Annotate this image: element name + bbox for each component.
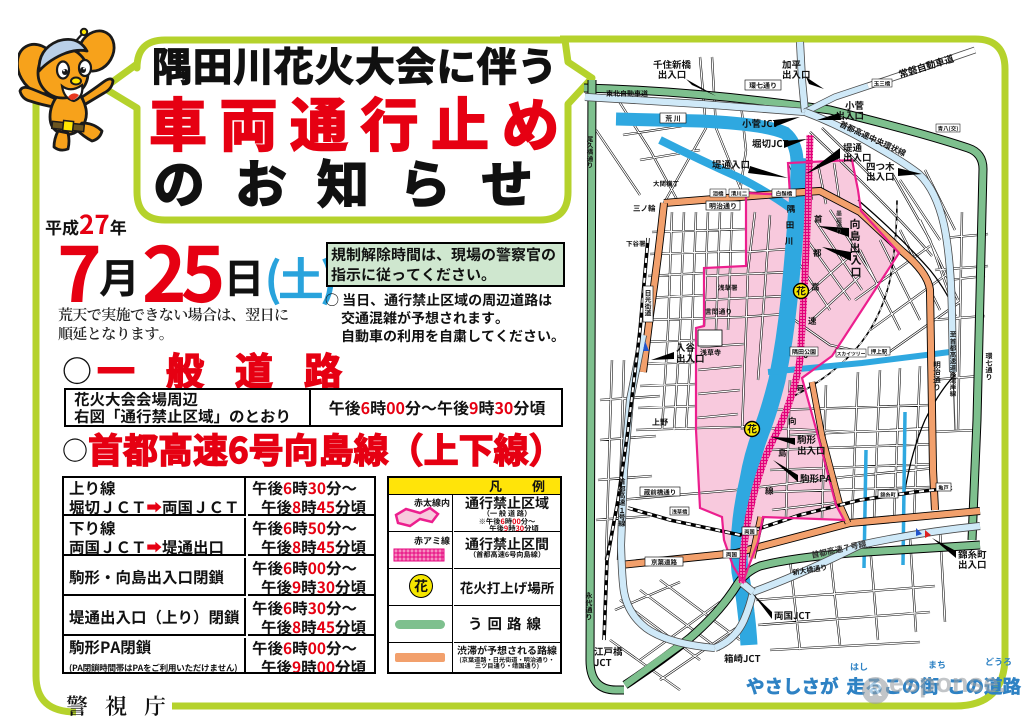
svg-text:小菅JCT: 小菅JCT (742, 116, 779, 130)
svg-text:線: 線 (765, 485, 774, 497)
svg-text:白鬚橋: 白鬚橋 (776, 190, 793, 198)
svg-text:首都高速７号線: 首都高速７号線 (810, 539, 867, 561)
svg-text:スカイツリー: スカイツリー (837, 351, 866, 358)
svg-text:花: 花 (747, 421, 757, 436)
svg-text:堤通入口: 堤通入口 (712, 157, 750, 171)
svg-text:環七通り: 環七通り (749, 81, 777, 91)
svg-text:両国: 両国 (726, 551, 738, 559)
svg-text:花: 花 (796, 283, 806, 298)
svg-text:浅草寺: 浅草寺 (700, 348, 721, 358)
svg-text:明治通り: 明治通り (709, 202, 737, 212)
svg-text:環七通り: 環七通り (984, 352, 994, 380)
svg-text:京葉道路: 京葉道路 (651, 557, 678, 567)
svg-text:口: 口 (851, 264, 862, 280)
svg-text:首都高速１号線: 首都高速１号線 (617, 478, 627, 527)
svg-text:両国: 両国 (744, 529, 754, 536)
svg-text:亀戸: 亀戸 (938, 485, 948, 492)
svg-text:出入口: 出入口 (866, 169, 895, 183)
svg-text:青八(交): 青八(交) (938, 125, 959, 133)
svg-text:首: 首 (814, 213, 823, 225)
svg-text:浅草橋: 浅草橋 (672, 509, 688, 516)
svg-text:田: 田 (786, 219, 795, 231)
svg-text:浅草署: 浅草署 (718, 282, 738, 292)
svg-text:尾久橋通り: 尾久橋通り (585, 135, 595, 168)
svg-text:隅田公園: 隅田公園 (792, 347, 816, 356)
svg-text:言問通り: 言問通り (705, 306, 732, 316)
svg-text:上野: 上野 (652, 417, 668, 428)
svg-text:出入口: 出入口 (782, 67, 811, 81)
svg-text:向: 向 (788, 415, 797, 427)
svg-text:出入口: 出入口 (958, 557, 987, 571)
svg-text:隅: 隅 (787, 203, 796, 215)
svg-text:JCT: JCT (594, 655, 612, 669)
svg-text:荒 川: 荒 川 (665, 114, 681, 124)
svg-text:日光街道: 日光街道 (643, 289, 653, 317)
svg-text:三ノ輪: 三ノ輪 (633, 203, 656, 214)
svg-text:泪橋: 泪橋 (712, 190, 724, 198)
svg-text:東北自動車道: 東北自動車道 (606, 89, 648, 99)
svg-text:出入口: 出入口 (658, 67, 687, 81)
svg-text:清川二: 清川二 (731, 190, 748, 198)
svg-text:都: 都 (813, 247, 822, 259)
svg-text:川: 川 (785, 235, 794, 247)
svg-text:蔵前橋通り: 蔵前橋通り (644, 487, 677, 497)
svg-text:錦糸町: 錦糸町 (880, 492, 896, 499)
svg-text:永代通り: 永代通り (584, 592, 594, 620)
svg-text:島: 島 (778, 447, 787, 459)
svg-text:出入口: 出入口 (797, 443, 826, 457)
svg-text:駒形PA: 駒形PA (800, 471, 832, 485)
svg-text:新大橋通り: 新大橋通り (792, 563, 828, 578)
svg-text:玉三橋: 玉三橋 (874, 80, 891, 88)
svg-text:堀切JCT: 堀切JCT (752, 136, 789, 150)
svg-text:速: 速 (808, 315, 817, 327)
svg-text:至 首都高速道路湾岸線: 至 首都高速道路湾岸線 (948, 330, 958, 397)
svg-text:押上駅: 押上駅 (871, 348, 888, 356)
svg-text:大関横丁: 大関横丁 (653, 178, 680, 188)
svg-text:両国JCT: 両国JCT (774, 608, 811, 622)
svg-text:下谷署: 下谷署 (626, 238, 646, 248)
svg-text:箱崎JCT: 箱崎JCT (724, 651, 761, 665)
svg-text:明治通り: 明治通り (932, 360, 943, 391)
svg-text:常磐自動車道: 常磐自動車道 (897, 51, 956, 81)
svg-text:墨堤通り: 墨堤通り (835, 210, 844, 234)
svg-text:高: 高 (811, 281, 820, 293)
svg-text:号: 号 (796, 383, 805, 395)
